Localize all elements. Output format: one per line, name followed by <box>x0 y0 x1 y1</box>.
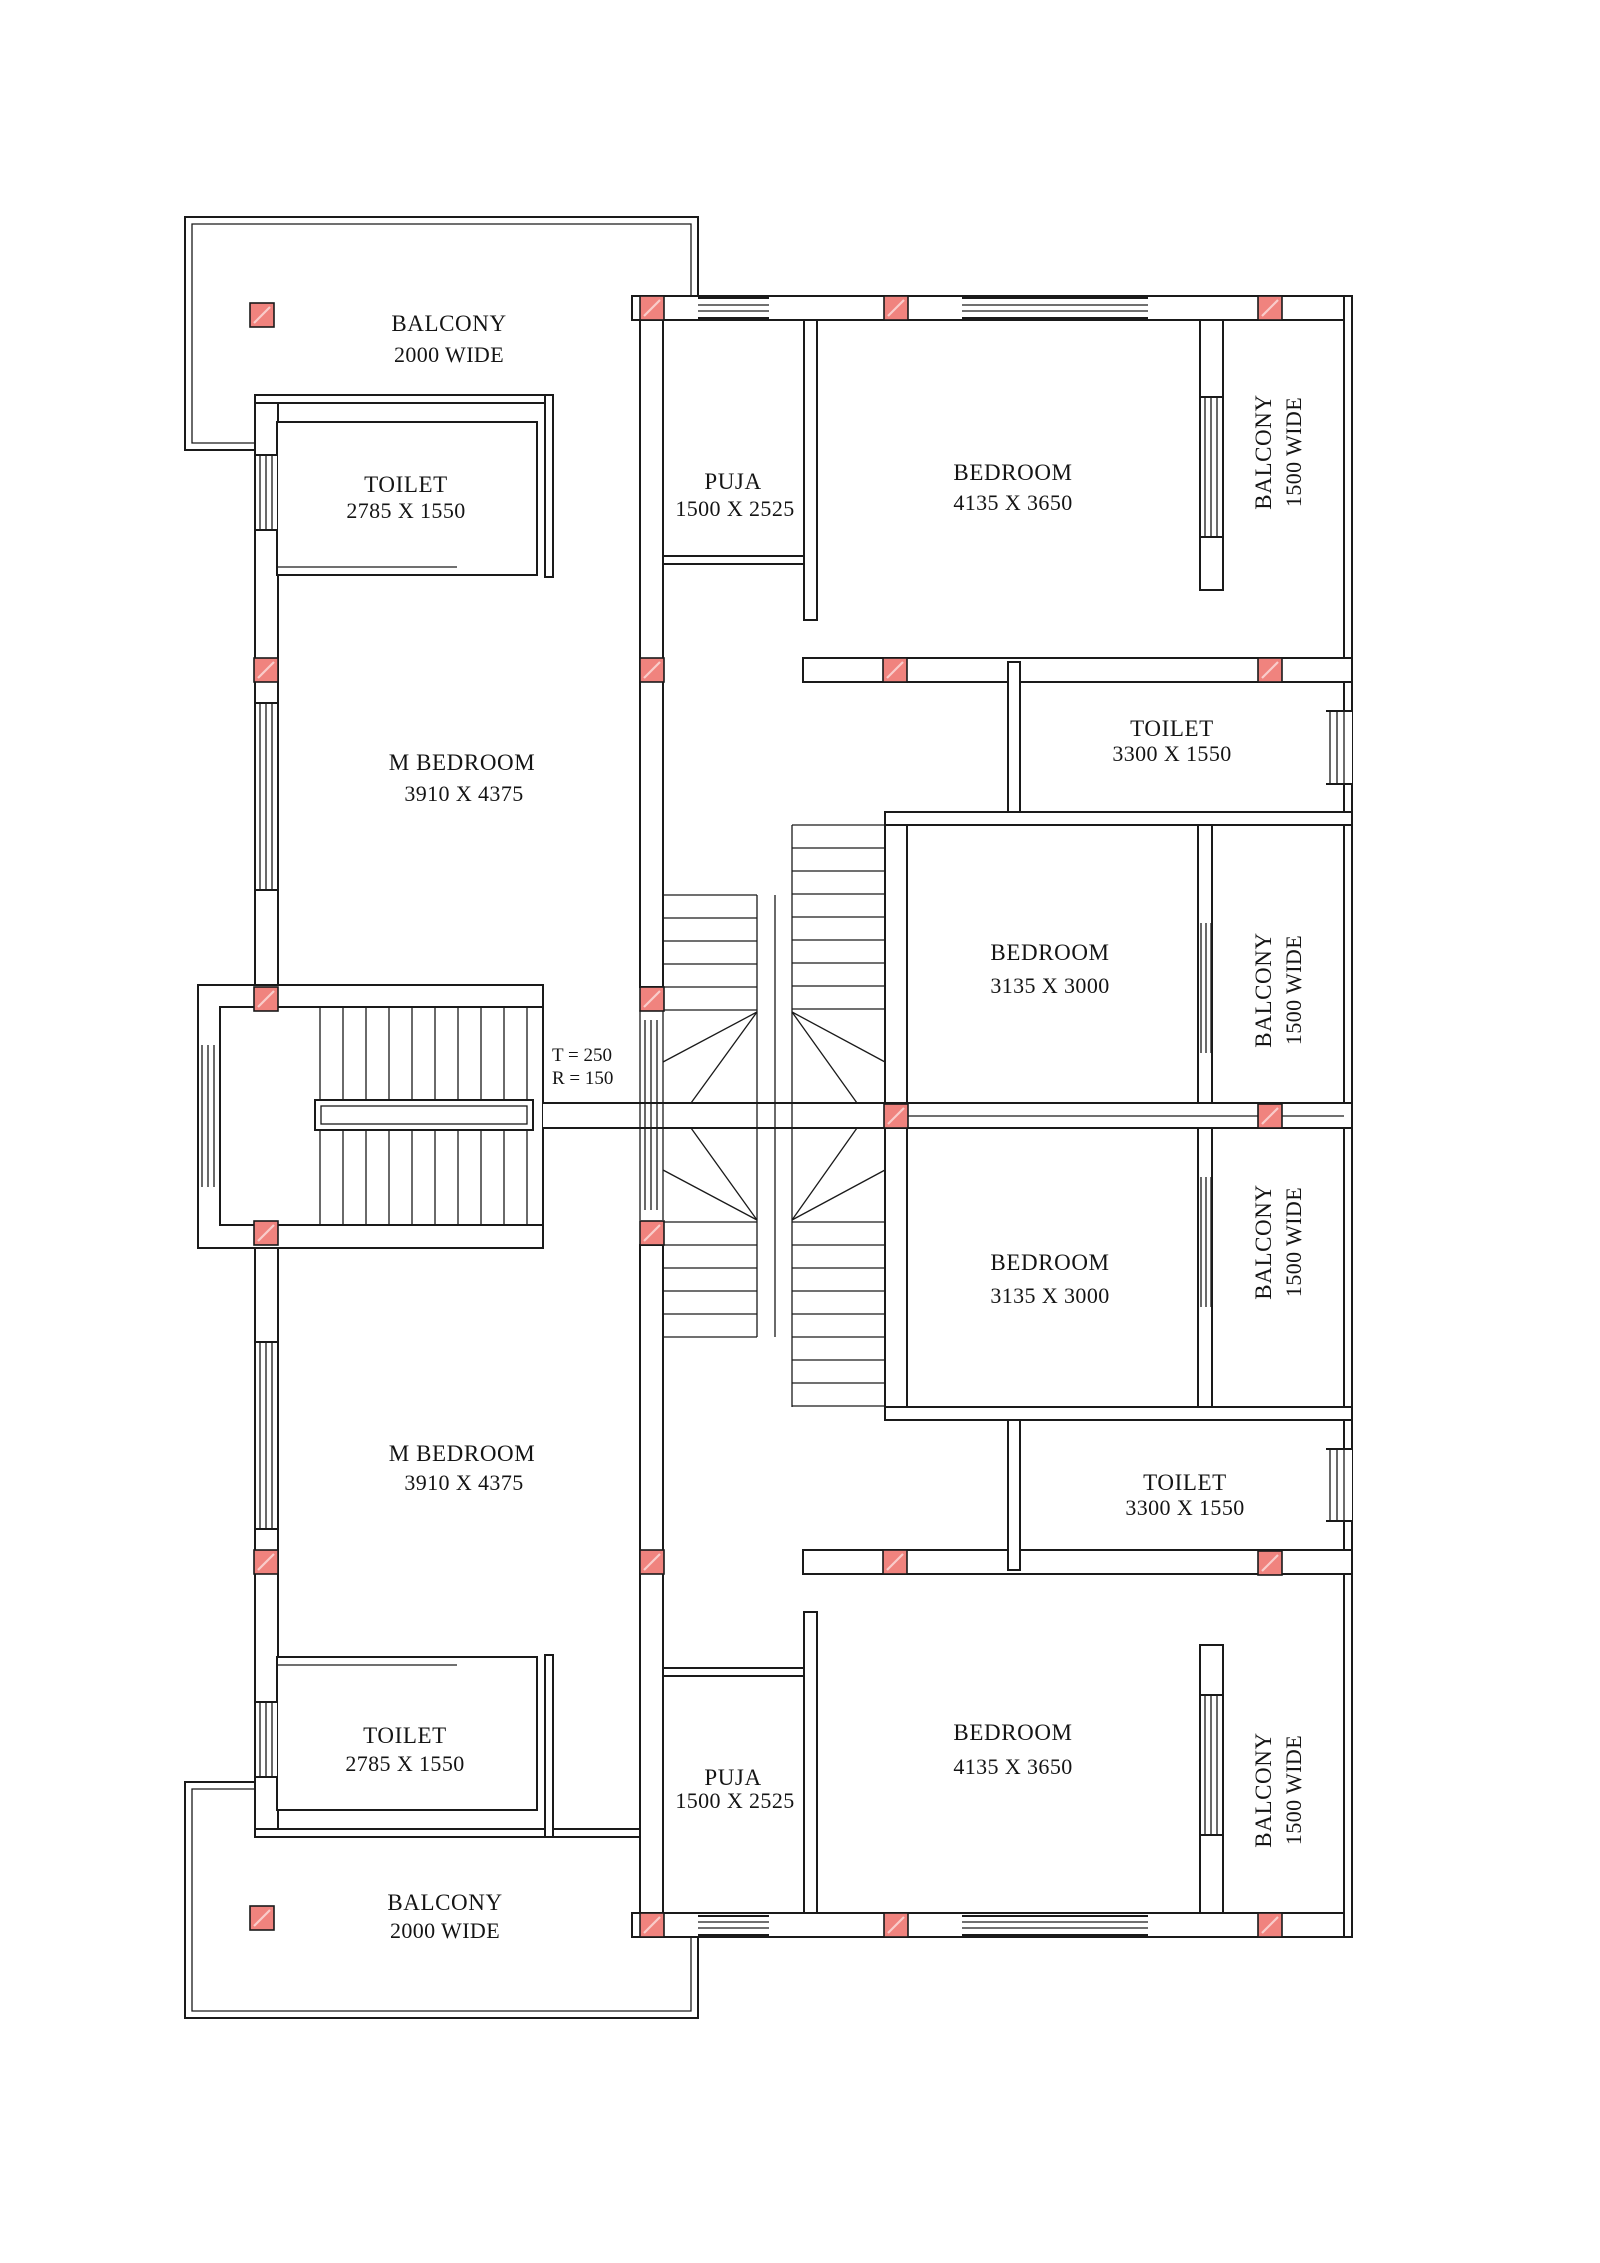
room-dims: 1500 WIDE <box>1281 935 1306 1045</box>
window-icon-left-4 <box>256 1702 277 1777</box>
room-dims: 3910 X 4375 <box>404 781 523 806</box>
room-label: TOILET <box>1130 716 1214 741</box>
room-dims: 2785 X 1550 <box>346 498 465 523</box>
column-icon <box>640 1221 664 1245</box>
room-dims: 1500 WIDE <box>1281 1735 1306 1845</box>
room-label: M BEDROOM <box>389 1441 536 1466</box>
column-icon <box>1258 296 1282 320</box>
column-icon <box>884 1104 908 1128</box>
left-staircase <box>198 985 543 1248</box>
room-dims: 4135 X 3650 <box>953 1754 1072 1779</box>
column-icon <box>254 658 278 682</box>
column-icon <box>254 1550 278 1574</box>
window-icon-right-lower <box>1326 1449 1352 1521</box>
column-icon <box>640 296 664 320</box>
room-label: BEDROOM <box>953 1720 1072 1745</box>
column-icon <box>1258 1104 1282 1128</box>
room-label: BEDROOM <box>953 460 1072 485</box>
room-label: PUJA <box>704 1765 761 1790</box>
column-icon <box>640 987 664 1011</box>
room-dims: 3135 X 3000 <box>990 973 1109 998</box>
room-dims: 3910 X 4375 <box>404 1470 523 1495</box>
window-icon-left-1 <box>256 455 277 530</box>
room-label: BALCONY <box>1251 1184 1276 1299</box>
column-icon <box>883 1550 907 1574</box>
room-label: TOILET <box>363 1723 447 1748</box>
room-dims: 1500 X 2525 <box>675 1788 794 1813</box>
column-icon <box>1258 1913 1282 1937</box>
window-icon-bottom-small <box>698 1915 769 1936</box>
stair-treads-central-down <box>663 1222 885 1406</box>
column-icon <box>884 296 908 320</box>
room-dims: 2785 X 1550 <box>345 1751 464 1776</box>
room-label: PUJA <box>704 469 761 494</box>
room-dims: 3135 X 3000 <box>990 1283 1109 1308</box>
column-icon <box>250 303 274 327</box>
room-dims: 2000 WIDE <box>390 1918 500 1943</box>
column-icon <box>254 987 278 1011</box>
window-icon-right-upper <box>1326 711 1352 784</box>
room-dims: 4135 X 3650 <box>953 490 1072 515</box>
room-dims: 3300 X 1550 <box>1112 741 1231 766</box>
floor-plan: BALCONY 2000 WIDE TOILET 2785 X 1550 PUJ… <box>0 0 1600 2263</box>
column-icon <box>250 1906 274 1930</box>
window-icon-top-small <box>698 297 769 319</box>
floor-plan-svg: BALCONY 2000 WIDE TOILET 2785 X 1550 PUJ… <box>0 0 1600 2263</box>
room-dims: 1500 WIDE <box>1281 397 1306 507</box>
column-icon <box>1258 1551 1282 1575</box>
window-icon-bedroom-br <box>1201 1695 1222 1835</box>
stair-tread-note: T = 250 <box>552 1045 612 1066</box>
window-icon-left-2 <box>256 703 277 890</box>
room-dims: 3300 X 1550 <box>1125 1495 1244 1520</box>
stair-riser-note: R = 150 <box>552 1068 613 1089</box>
window-icon-left-3 <box>256 1342 277 1529</box>
room-label: BEDROOM <box>990 1250 1109 1275</box>
room-label: BALCONY <box>1251 932 1276 1047</box>
stair-treads-central-up <box>663 825 885 1010</box>
room-dims: 1500 WIDE <box>1281 1187 1306 1297</box>
room-label: M BEDROOM <box>389 750 536 775</box>
window-icon-bottom-large <box>962 1915 1148 1936</box>
column-icon <box>883 658 907 682</box>
room-label: TOILET <box>364 472 448 497</box>
landing-band <box>543 1103 885 1128</box>
room-label: BEDROOM <box>990 940 1109 965</box>
room-label: BALCONY <box>387 1890 502 1915</box>
column-icon <box>254 1221 278 1245</box>
room-label: BALCONY <box>1251 1732 1276 1847</box>
column-icon <box>640 1913 664 1937</box>
window-icon-bedroom-tr <box>1201 397 1222 537</box>
room-label: BALCONY <box>391 311 506 336</box>
column-icon <box>640 1550 664 1574</box>
column-icon <box>640 658 664 682</box>
room-label: BALCONY <box>1251 394 1276 509</box>
column-icon <box>1258 658 1282 682</box>
room-dims: 2000 WIDE <box>394 342 504 367</box>
window-icon-top-large <box>962 297 1148 319</box>
room-dims: 1500 X 2525 <box>675 496 794 521</box>
room-label: TOILET <box>1143 1470 1227 1495</box>
column-icon <box>884 1913 908 1937</box>
